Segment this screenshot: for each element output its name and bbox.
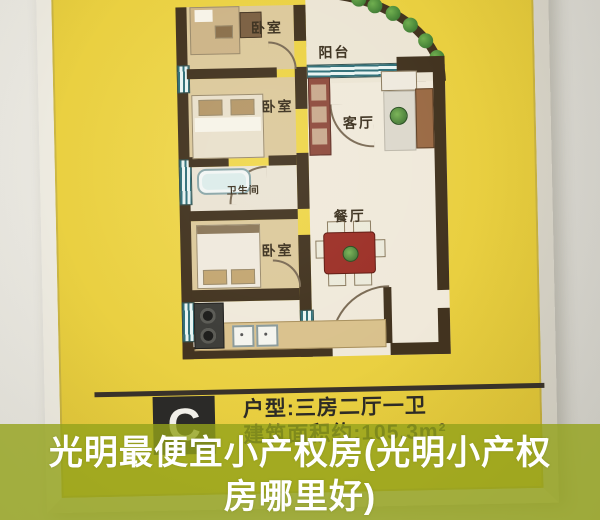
bed [189, 6, 240, 55]
bed-headboard [197, 225, 259, 234]
wall-segment [269, 155, 297, 166]
sofa-cushion [311, 84, 326, 100]
floor-plan: 卧室 阳台 卧室 客厅 卫生间 卧室 餐厅 [169, 2, 458, 366]
pillow [198, 100, 222, 116]
room-label-bedroom-top: 卧室 [251, 17, 283, 38]
bed [191, 94, 264, 159]
kitchen-sink [232, 325, 254, 347]
sofa [308, 77, 332, 155]
title-line-2: 房哪里好) [224, 475, 376, 519]
room-label-bathroom: 卫生间 [227, 181, 260, 197]
room-label-bedroom-middle: 卧室 [261, 96, 293, 117]
wall-segment [187, 67, 277, 79]
burner-icon [200, 308, 216, 324]
table-plant-icon [342, 246, 358, 262]
room-label-living-room: 客厅 [343, 112, 375, 133]
wall-segment [438, 308, 451, 354]
bed-sheet [194, 10, 212, 22]
shelf-unit [415, 88, 434, 148]
wall-segment [296, 153, 309, 209]
room-label-balcony: 阳台 [318, 42, 350, 63]
stove [194, 303, 225, 350]
wall-segment [293, 5, 306, 41]
burner-icon [200, 328, 216, 344]
pillow [231, 269, 255, 284]
sofa-cushion [312, 106, 327, 122]
wall-segment [295, 67, 308, 109]
sofa-cushion [312, 128, 327, 144]
tv-cabinet [381, 70, 417, 91]
bed-sheet [195, 117, 261, 132]
pillow [203, 269, 227, 284]
bed [196, 224, 261, 289]
pillow [215, 25, 233, 38]
title-banner: 光明最便宜小产权房(光明小产权 房哪里好) [0, 424, 600, 520]
photo-thumbnail: 卧室 阳台 卧室 客厅 卫生间 卧室 餐厅 C 户型:三房二厅一卫 建筑面积约:… [0, 0, 600, 520]
pillow [230, 99, 254, 115]
dining-table [323, 231, 376, 274]
title-line-1: 光明最便宜小产权房(光明小产权 [49, 431, 551, 475]
room-label-dining-room: 餐厅 [334, 206, 366, 227]
wall-segment [191, 288, 299, 302]
room-label-bedroom-bottom: 卧室 [261, 240, 293, 261]
kitchen-sink [256, 324, 278, 346]
